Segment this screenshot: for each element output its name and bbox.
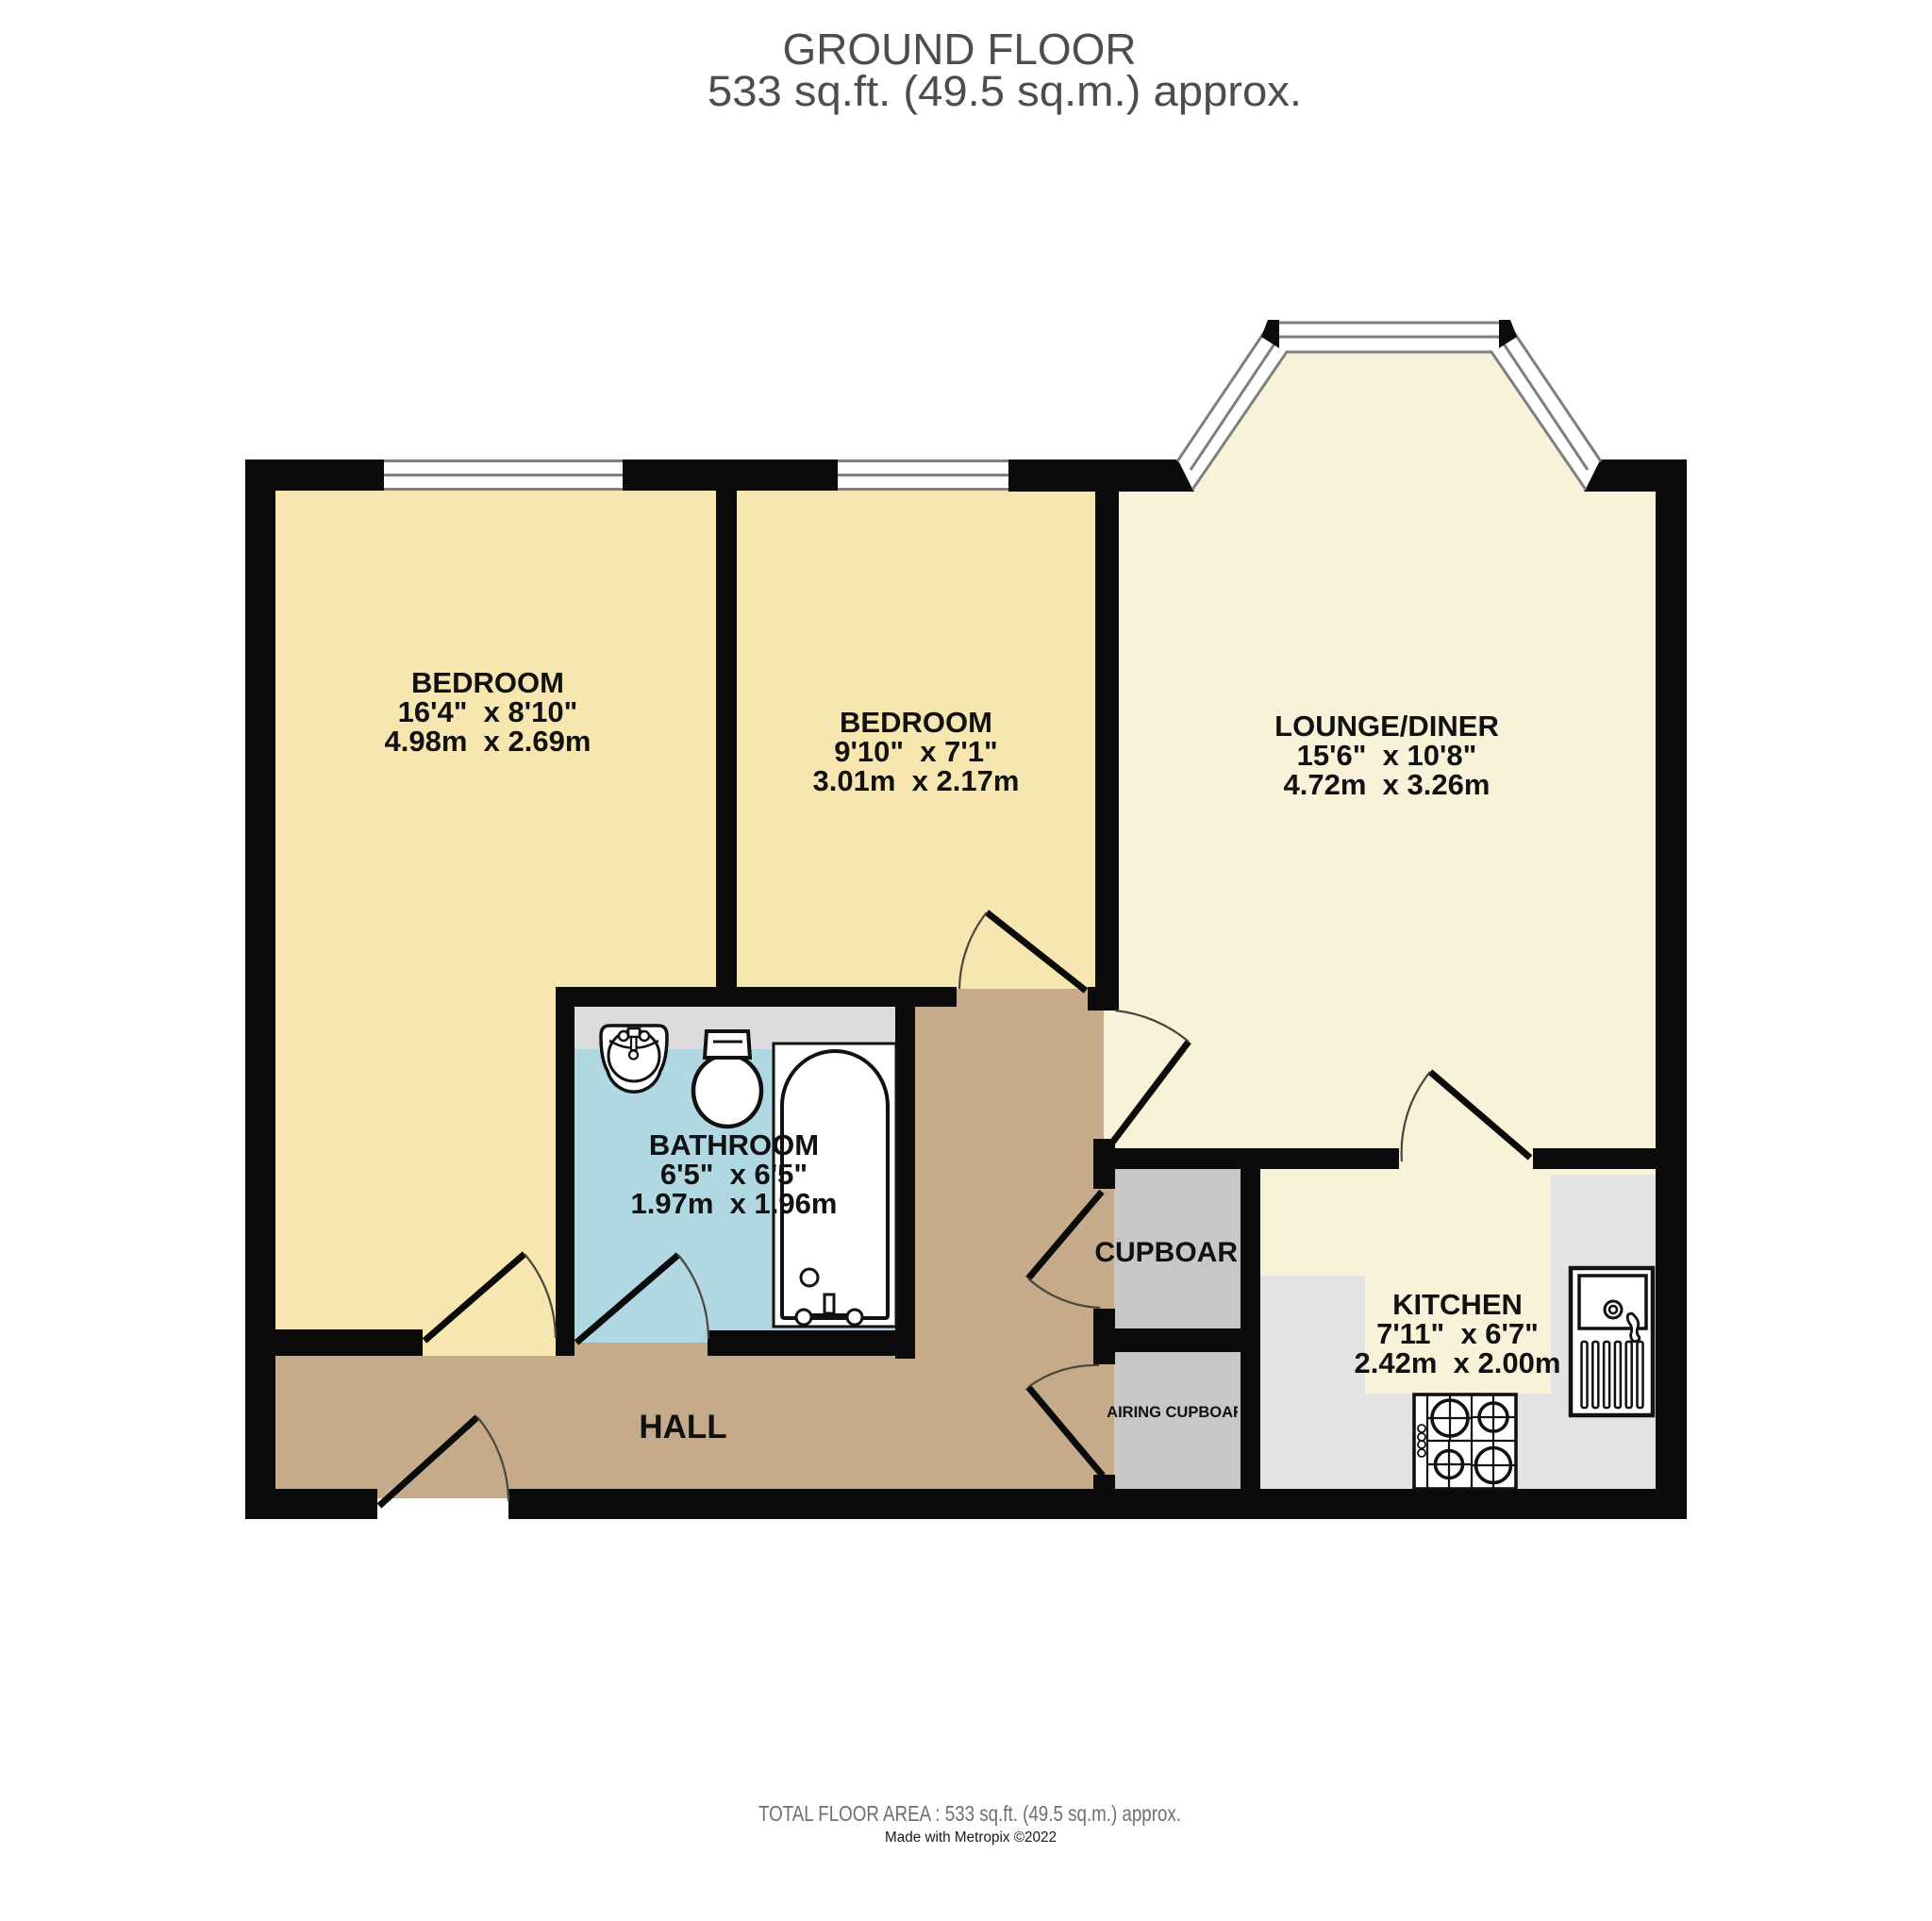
svg-text:3.01m x 2.17m: 3.01m x 2.17m — [813, 764, 1020, 797]
svg-text:TOTAL FLOOR AREA : 533 sq.ft.: TOTAL FLOOR AREA : 533 sq.ft. (49.5 sq.m… — [758, 1801, 1181, 1826]
svg-text:1.97m x 1.96m: 1.97m x 1.96m — [631, 1187, 838, 1220]
svg-text:BEDROOM: BEDROOM — [411, 666, 564, 699]
svg-text:9'10" x 7'1": 9'10" x 7'1" — [834, 735, 997, 768]
svg-text:6'5" x 6'5": 6'5" x 6'5" — [660, 1158, 808, 1191]
svg-text:533 sq.ft. (49.5 sq.m.) approx: 533 sq.ft. (49.5 sq.m.) approx. — [708, 67, 1302, 115]
svg-text:KITCHEN: KITCHEN — [1392, 1288, 1523, 1321]
svg-text:AIRING CUPBOARD: AIRING CUPBOARD — [1107, 1404, 1256, 1421]
svg-text:LOUNGE/DINER: LOUNGE/DINER — [1274, 710, 1499, 743]
svg-text:CUPBOARD: CUPBOARD — [1094, 1237, 1257, 1268]
svg-text:16'4" x 8'10": 16'4" x 8'10" — [398, 695, 578, 728]
svg-text:15'6" x 10'8": 15'6" x 10'8" — [1297, 739, 1477, 772]
svg-text:Made with Metropix ©2022: Made with Metropix ©2022 — [885, 1829, 1057, 1846]
svg-text:4.98m x 2.69m: 4.98m x 2.69m — [385, 725, 591, 758]
svg-text:HALL: HALL — [639, 1409, 726, 1445]
svg-text:7'11" x 6'7": 7'11" x 6'7" — [1376, 1317, 1539, 1350]
svg-text:2.42m x 2.00m: 2.42m x 2.00m — [1355, 1346, 1561, 1379]
svg-text:BATHROOM: BATHROOM — [649, 1128, 819, 1161]
svg-text:BEDROOM: BEDROOM — [840, 706, 992, 739]
svg-text:4.72m x 3.26m: 4.72m x 3.26m — [1284, 768, 1491, 801]
